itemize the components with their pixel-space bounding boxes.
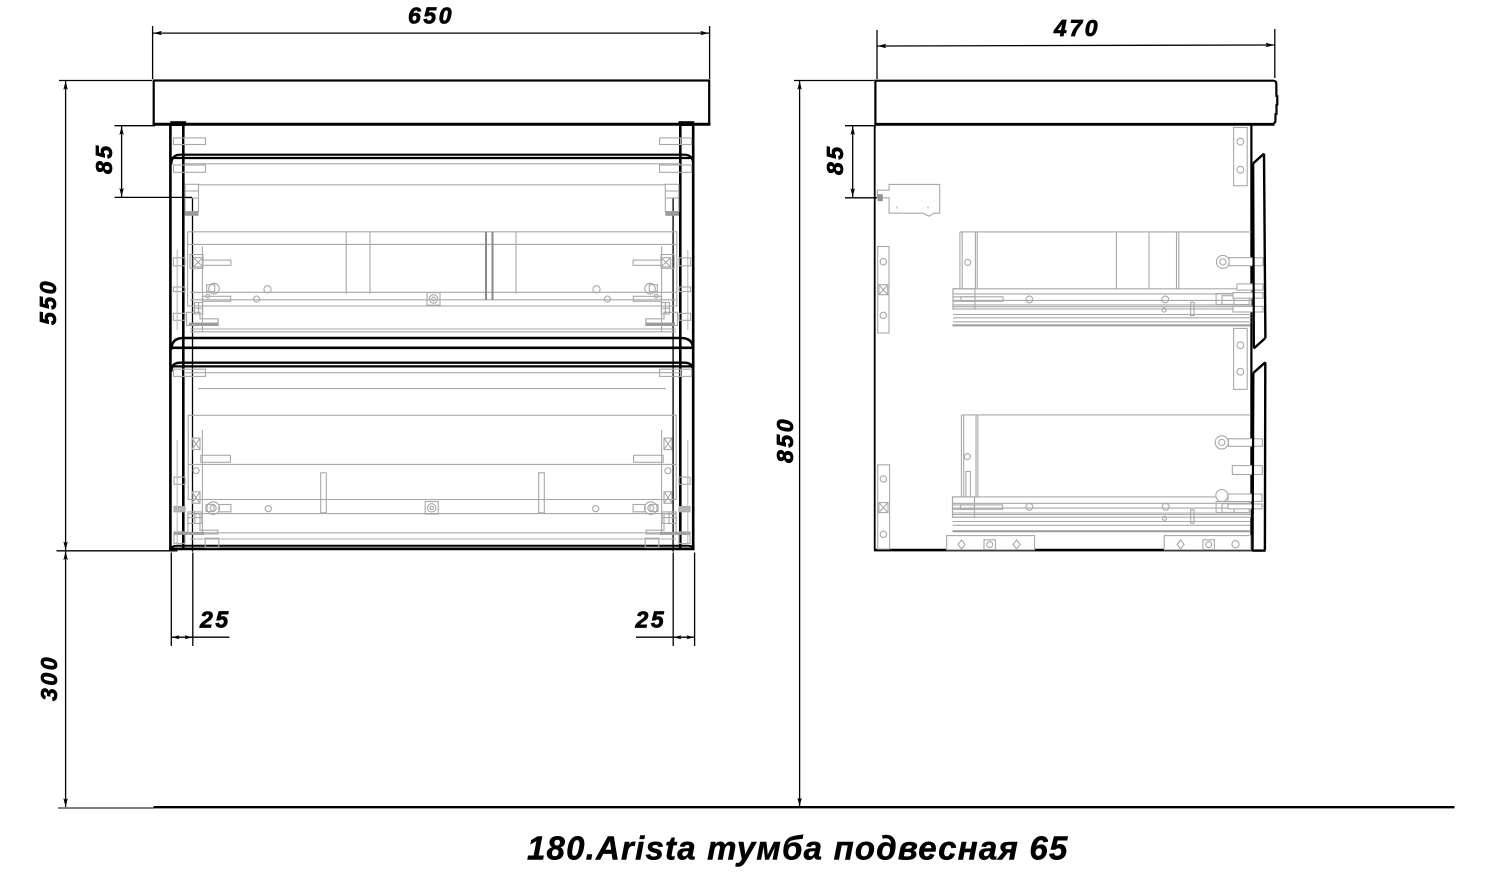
svg-text:300: 300	[36, 655, 62, 701]
svg-text:180.Arista тумба подвесная 65: 180.Arista тумба подвесная 65	[527, 830, 1069, 867]
svg-text:25: 25	[199, 607, 231, 633]
svg-text:85: 85	[822, 144, 848, 175]
svg-text:470: 470	[1053, 15, 1100, 41]
svg-text:25: 25	[635, 607, 667, 633]
svg-text:850: 850	[772, 417, 798, 463]
svg-text:550: 550	[35, 279, 61, 325]
svg-text:85: 85	[91, 143, 117, 174]
svg-text:650: 650	[408, 3, 454, 29]
